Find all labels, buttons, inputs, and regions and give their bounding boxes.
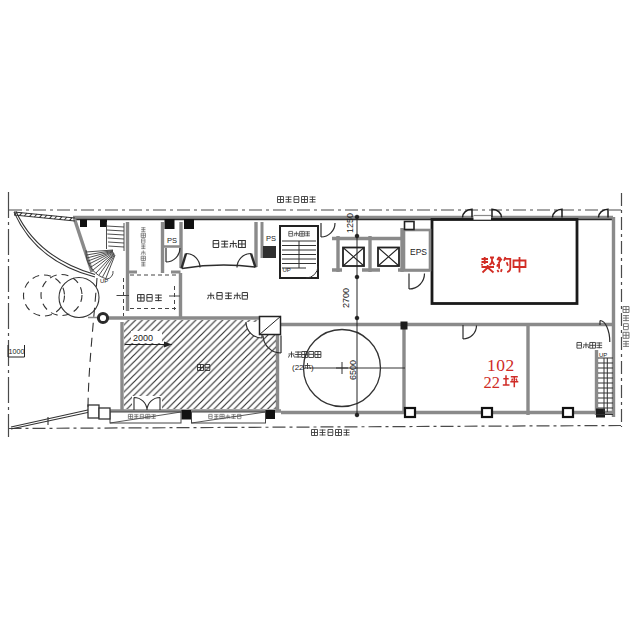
svg-text:102: 102 — [487, 355, 515, 375]
svg-text:1000: 1000 — [9, 348, 25, 355]
svg-text:22: 22 — [484, 373, 501, 392]
svg-text:(22: (22 — [292, 363, 304, 372]
svg-text:UP: UP — [100, 278, 108, 284]
svg-text:2700: 2700 — [341, 288, 351, 308]
svg-text:PS: PS — [266, 234, 276, 243]
svg-text:UP: UP — [283, 267, 291, 273]
svg-text:1250: 1250 — [345, 213, 355, 233]
svg-text:UP: UP — [599, 352, 607, 358]
svg-text:2000: 2000 — [133, 333, 153, 343]
svg-text:PS: PS — [167, 236, 177, 245]
svg-text:): ) — [311, 363, 314, 372]
svg-text:EPS: EPS — [410, 247, 427, 257]
svg-text:6500: 6500 — [348, 360, 358, 380]
